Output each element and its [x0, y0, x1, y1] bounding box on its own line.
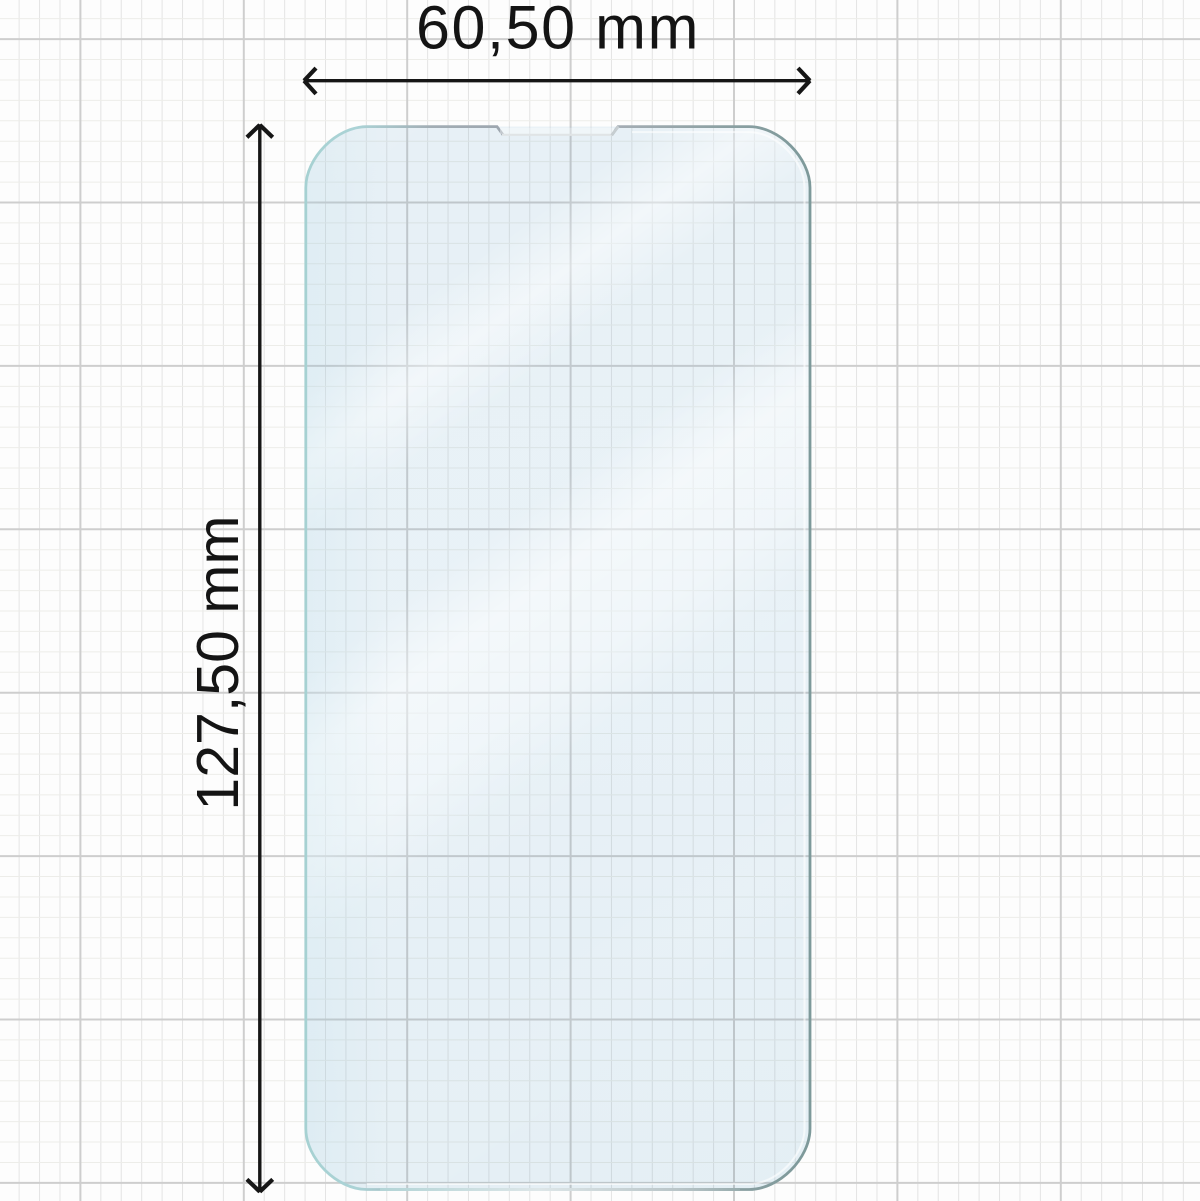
svg-text:60,50 mm: 60,50 mm	[416, 0, 700, 61]
svg-text:127,50 mm: 127,50 mm	[185, 515, 251, 810]
